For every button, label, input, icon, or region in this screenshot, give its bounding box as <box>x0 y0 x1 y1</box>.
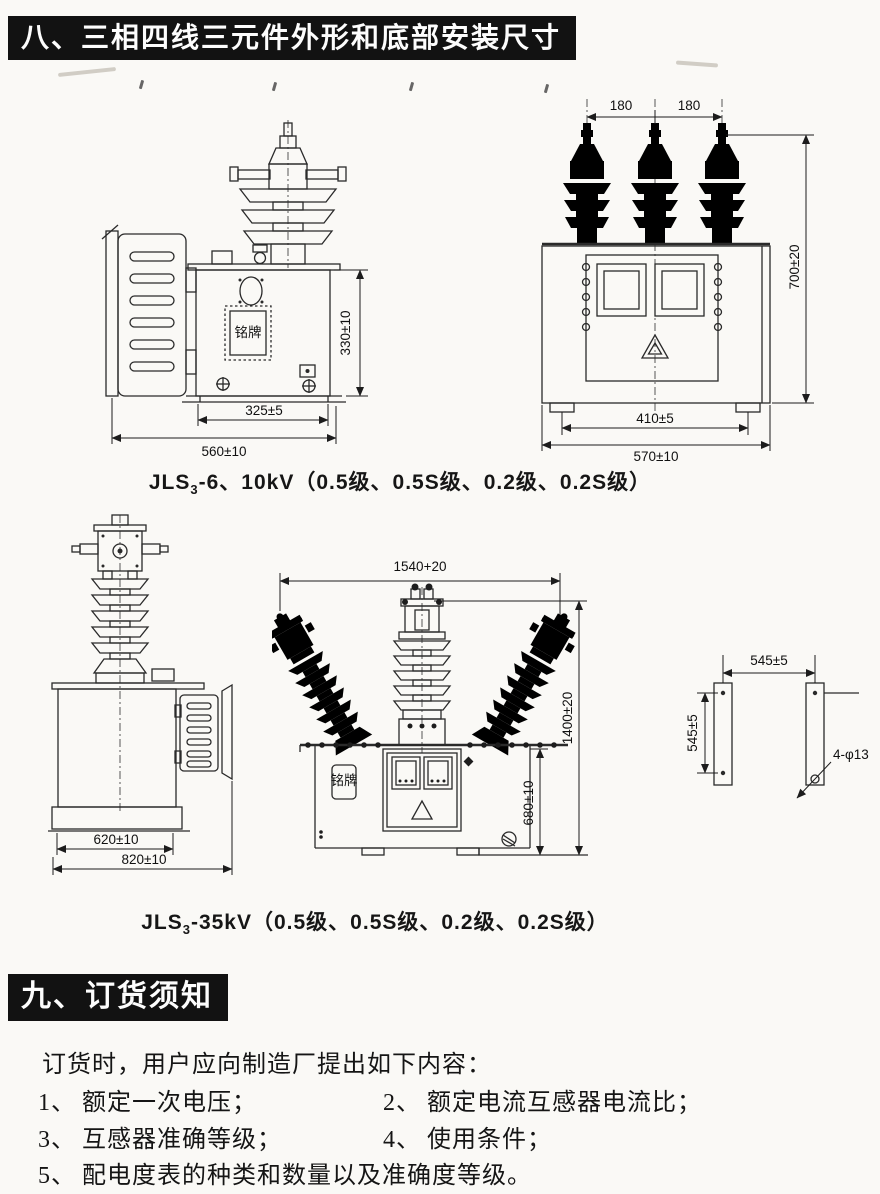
scanned-page: 八、三相四线三元件外形和底部安装尺寸 <box>0 0 880 1194</box>
drawing-35kv-side-view: 620±10 820±10 <box>40 513 255 881</box>
ordering-item-3: 3、互感器准确等级； <box>38 1119 282 1154</box>
nameplate-label: 铭牌 <box>235 324 262 340</box>
dimensions-35kv-side: 620±10 820±10 <box>53 781 232 875</box>
nameplate-label: 铭牌 <box>331 772 358 788</box>
scan-artifact <box>544 84 549 93</box>
dim-label-325: 325±5 <box>245 403 282 418</box>
dim-label-330: 330±10 <box>338 311 353 356</box>
ordering-item-1: 1、额定一次电压； <box>38 1082 257 1117</box>
transformer-side-outline: 铭牌 <box>102 120 346 402</box>
dim-label-545-h: 545±5 <box>750 653 787 668</box>
scan-artifact <box>139 80 144 89</box>
model-name: JLS <box>149 471 191 494</box>
dim-label-680: 680±10 <box>521 781 536 826</box>
model-name: JLS <box>141 911 183 934</box>
section-9-header: 九、订货须知 <box>8 974 228 1021</box>
transformer-35kv-side-outline <box>48 515 232 831</box>
dim-label-570: 570±10 <box>634 449 679 464</box>
ordering-item-2: 2、额定电流互感器电流比； <box>383 1082 702 1117</box>
section-8-header: 八、三相四线三元件外形和底部安装尺寸 <box>8 16 576 60</box>
dim-label-700: 700±20 <box>787 245 802 290</box>
dim-label-1540: 1540+20 <box>394 559 447 574</box>
dim-label-1400: 1400±20 <box>560 692 575 744</box>
dim-label-180-right: 180 <box>678 98 701 113</box>
scan-smudge <box>676 61 718 68</box>
dim-label-410: 410±5 <box>636 411 673 426</box>
drawing-35kv-front-view: 铭牌 1540+20 1400±20 680±10 <box>272 553 607 895</box>
dim-label-180-left: 180 <box>610 98 633 113</box>
dim-label-4phi13: 4-φ13 <box>833 747 869 762</box>
dim-label-545-v: 545±5 <box>685 714 700 751</box>
scan-smudge <box>58 67 116 77</box>
drawing-10kv-side-view: 铭牌 330±10 325±5 560±10 <box>88 118 398 463</box>
dimensions-footprint: 545±5 545±5 4-φ13 <box>685 653 869 798</box>
figure-caption-10kv: JLS3-6、10kV（0.5级、0.5S级、0.2级、0.2S级） <box>100 466 700 497</box>
scan-artifact <box>409 82 414 91</box>
dim-label-620: 620±10 <box>94 832 139 847</box>
scan-artifact <box>272 82 277 91</box>
dim-label-820: 820±10 <box>122 852 167 867</box>
ordering-item-5: 5、配电度表的种类和数量以及准确度等级。 <box>38 1155 532 1190</box>
dim-label-560: 560±10 <box>202 444 247 459</box>
figure-caption-35kv: JLS3-35kV（0.5级、0.5S级、0.2级、0.2S级） <box>95 906 655 937</box>
footprint-outline <box>714 683 859 785</box>
transformer-35kv-front-outline: 铭牌 <box>272 584 588 856</box>
ordering-intro: 订货时，用户应向制造厂提出如下内容： <box>42 1044 492 1079</box>
transformer-front-outline <box>542 99 770 413</box>
drawing-10kv-front-view: 180 180 700±20 410±5 570±10 <box>540 95 860 467</box>
ordering-item-4: 4、使用条件； <box>383 1119 552 1154</box>
drawing-mounting-footprint: 545±5 545±5 4-φ13 <box>685 643 875 848</box>
